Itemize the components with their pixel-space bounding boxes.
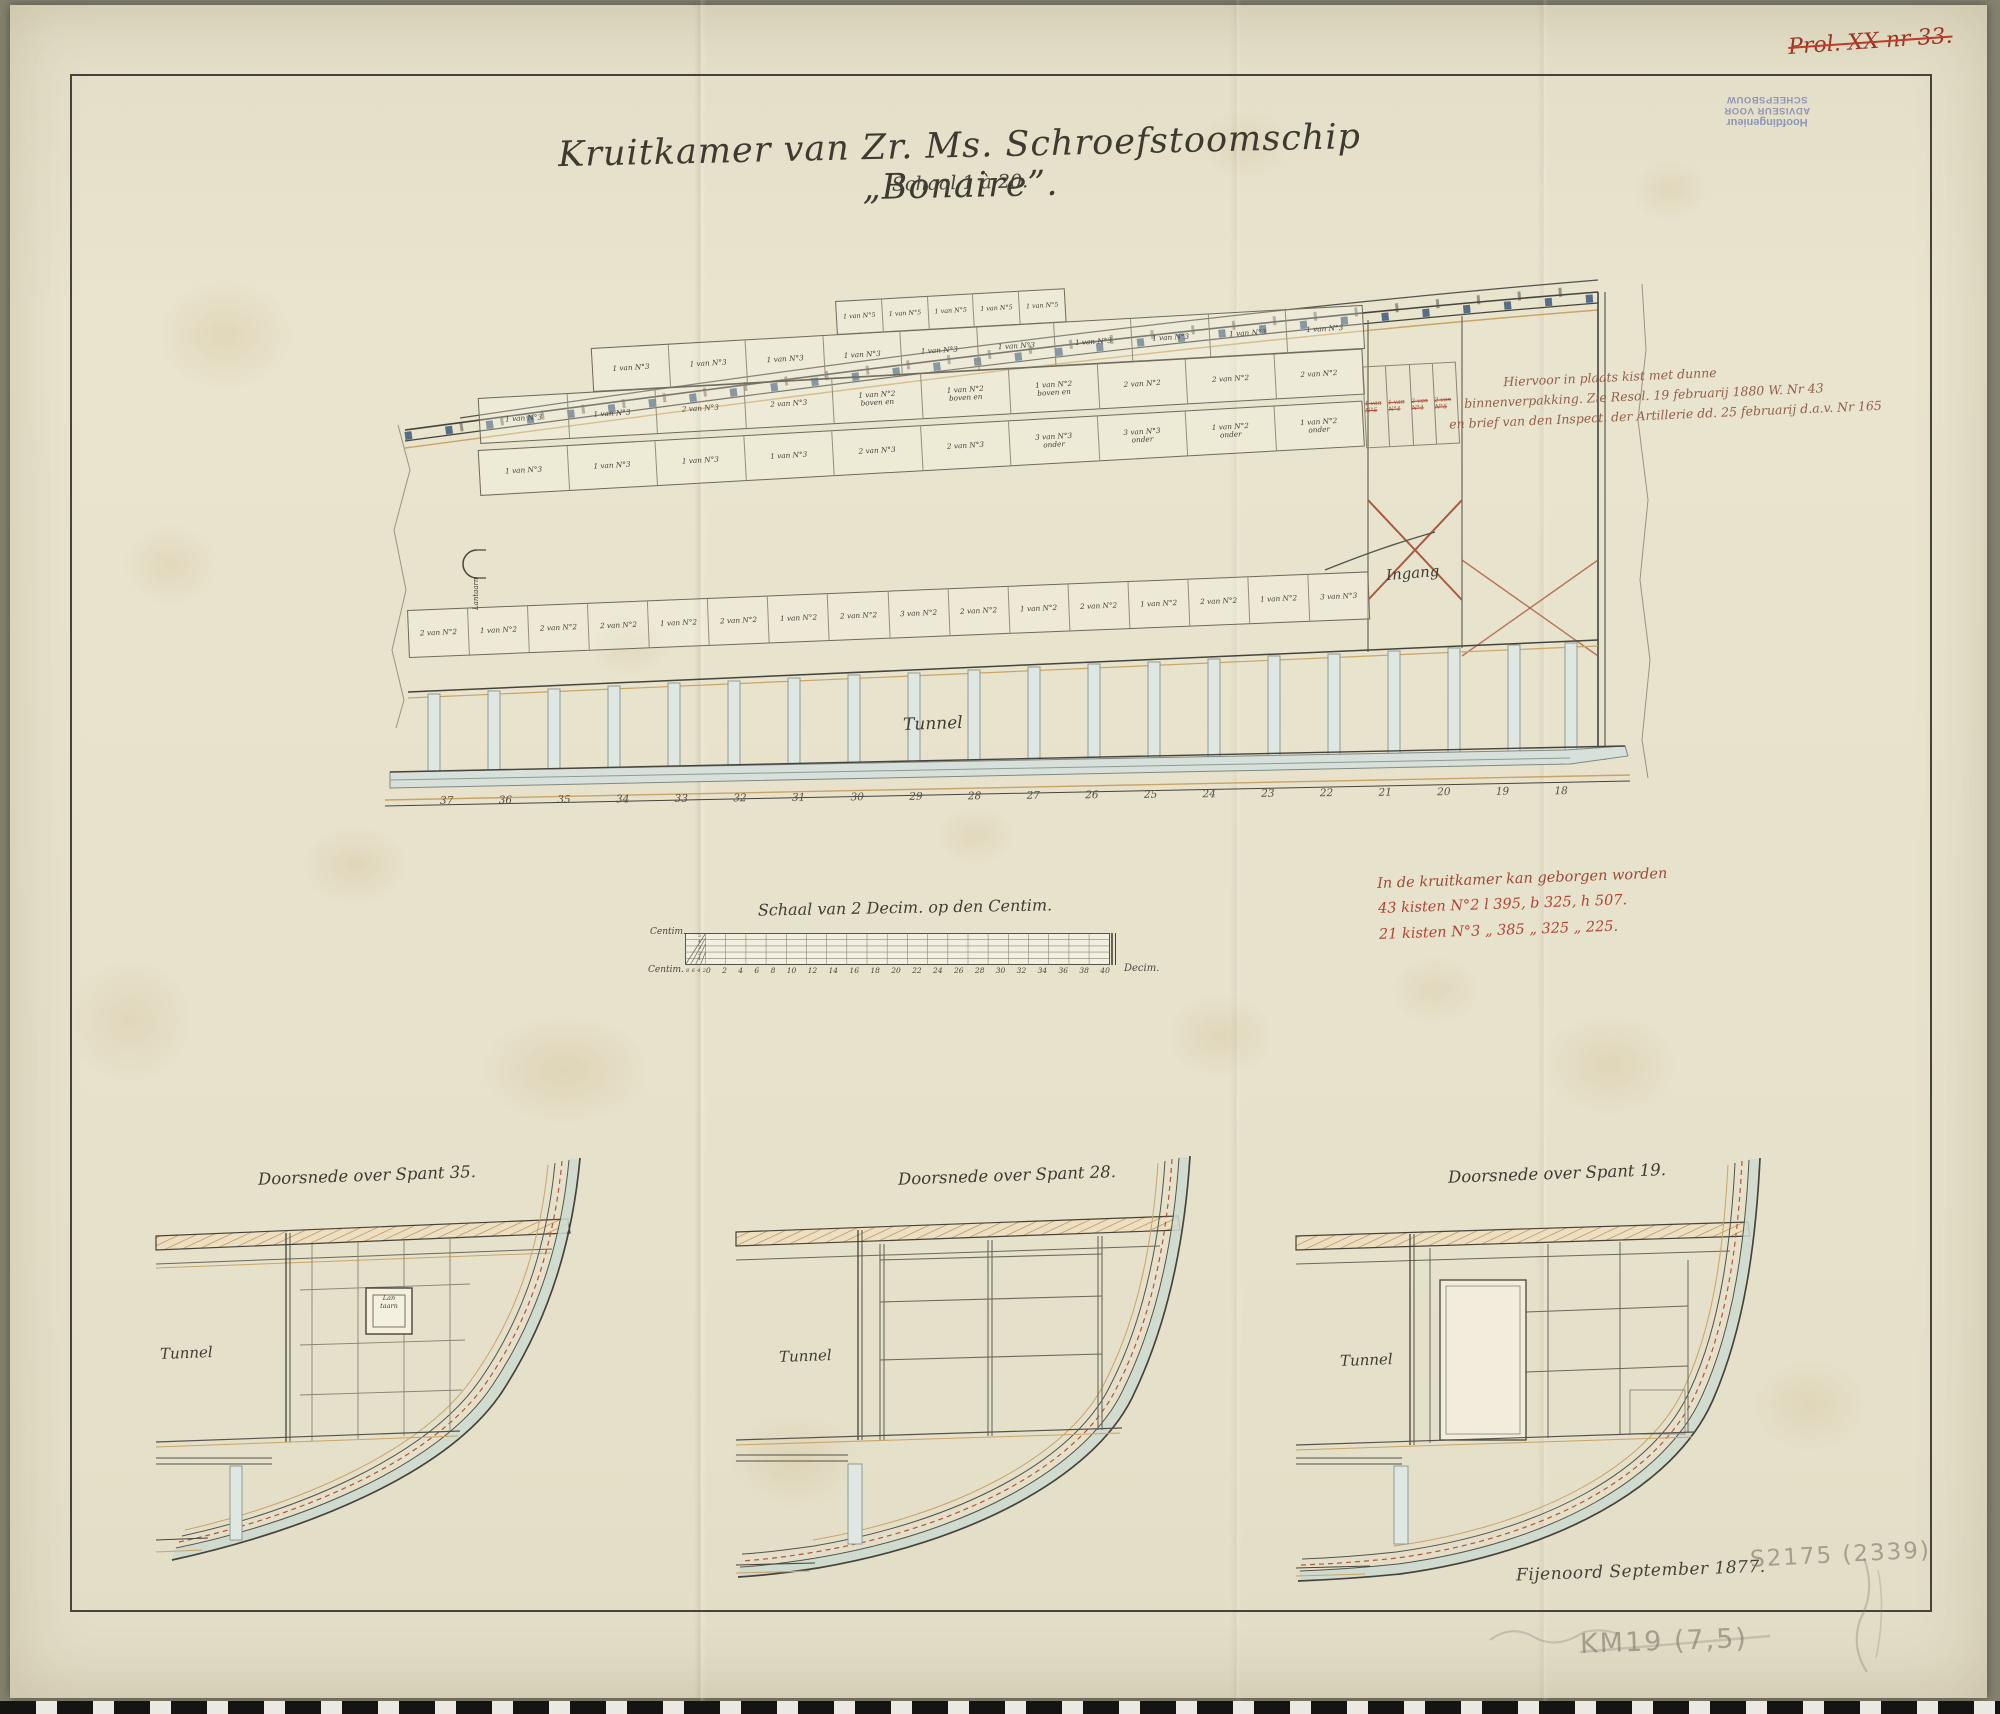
door-panel <box>1440 1280 1526 1440</box>
frame-number: 28 <box>968 790 981 802</box>
pre-tick: 4 <box>697 968 700 974</box>
tick-number: 20 <box>891 966 901 975</box>
rack-cell: 1 van N°3 <box>977 323 1056 369</box>
scale-bar-body <box>686 934 1110 965</box>
archive-stamp: Hoofdingenieur ADVISEUR VOOR SCHEEPSBOUW <box>1692 94 1842 128</box>
side-tick: 1 <box>698 958 701 963</box>
rack-cell: 1 van N°2 <box>648 599 710 647</box>
frame-number: 34 <box>616 793 629 805</box>
frame-number: 25 <box>1144 789 1157 801</box>
torn-edge-right <box>1638 284 1650 778</box>
rack-cell: 2 van N°2 <box>1097 359 1188 408</box>
tick-number: 2 <box>722 966 727 975</box>
tick-number: 36 <box>1058 966 1068 975</box>
frame-number: 33 <box>675 793 688 805</box>
tick-number: 4 <box>738 966 743 975</box>
rack-cell: 1 van N°3 <box>655 436 746 485</box>
rack-cell: 1 van N°3 <box>746 336 825 382</box>
section-spant-35 <box>156 1158 580 1560</box>
frame-number: 23 <box>1261 788 1274 800</box>
tick-number: 30 <box>996 966 1006 975</box>
rack-cell: 1 van N°2 boven en <box>832 374 923 423</box>
frame-number: 29 <box>909 791 922 803</box>
rack-cell: 3 van N°3 onder <box>1009 416 1100 465</box>
rack-cell: 1 van N°5 <box>882 297 930 332</box>
rack-cell: 1 van N°3 <box>567 389 658 438</box>
rack-cell: 1 van N°3 <box>744 431 835 480</box>
section-spant-28 <box>736 1156 1190 1577</box>
frame-number: 19 <box>1496 786 1509 798</box>
rack-cell: 1 van N°3 <box>1131 315 1210 361</box>
rack-cell: 1 van N°5 <box>973 292 1021 327</box>
frame-number: 27 <box>1027 790 1040 802</box>
scale-bar-unit-bottom-left: Centim. <box>648 965 684 975</box>
frame-number: 20 <box>1437 786 1450 798</box>
scale-bar-ticks: 0246810121416182022242628303234363840 <box>706 966 1110 975</box>
rack-cell: 2 van N°2 <box>708 597 770 645</box>
scale-bar-unit-right: Decim. <box>1124 963 1159 974</box>
rack-cell: 2 van N°2 <box>1188 577 1250 625</box>
side-tick: 4 <box>698 941 701 946</box>
film-sprocket-strip <box>0 1701 2000 1714</box>
tick-number: 34 <box>1038 966 1048 975</box>
rack-cell: 2 van N°2 <box>588 601 650 649</box>
rack-cell: 2 van N°2 <box>828 592 890 640</box>
rack-cell: 2 van N°2 <box>408 609 470 657</box>
tunnel-pillars <box>428 643 1577 771</box>
rack-cell: 2 van N°3 <box>921 421 1012 470</box>
rack-cell: 1 van N°3 <box>479 394 570 443</box>
tunnel-label-section-19: Tunnel <box>1340 1350 1393 1370</box>
pencil-scribbles <box>1440 1540 1900 1710</box>
rack-cell: 1 van N°2 onder <box>1186 407 1277 456</box>
rack-cell: 1 van N°3 <box>823 332 902 378</box>
tick-number: 32 <box>1017 966 1027 975</box>
tick-number: 8 <box>771 966 776 975</box>
frame-number: 22 <box>1320 787 1333 799</box>
rack-cell: 2 van N°2 <box>528 604 590 652</box>
tunnel-label-plan: Tunnel <box>903 713 963 735</box>
scale-bar-pre-ticks: 8642 <box>686 968 706 974</box>
frame-number: 32 <box>733 792 746 804</box>
tick-number: 38 <box>1079 966 1089 975</box>
tunnel-label-section-28: Tunnel <box>779 1346 832 1366</box>
tick-number: 40 <box>1100 966 1110 975</box>
rack-cell: 2 van N°3 <box>744 379 835 428</box>
rack-cell: 1 van N°3 <box>1208 310 1287 356</box>
frame-number: 31 <box>792 792 805 804</box>
tick-number: 14 <box>829 966 839 975</box>
rack-cell: 1 van N°2 onder <box>1274 402 1364 451</box>
rack-cell: 1 van N°5 <box>1019 289 1066 323</box>
rack-cell: 1 van N°3 <box>1286 306 1364 352</box>
section-spant-19 <box>1296 1158 1760 1581</box>
rack-cell: 1 van N°5 <box>836 299 884 334</box>
struck-row: 1 van N°51 van N°42 van N°42 van N°5 <box>1363 363 1459 448</box>
tick-number: 26 <box>954 966 964 975</box>
frame-number: 35 <box>557 794 570 806</box>
frame-number: 18 <box>1554 785 1567 797</box>
rack-cell: 1 van N°2 <box>1128 580 1190 628</box>
tick-number: 24 <box>933 966 943 975</box>
tick-number: 16 <box>849 966 859 975</box>
rack-cell: 1 van N°3 <box>479 446 570 495</box>
tick-number: 18 <box>870 966 880 975</box>
rack-cell: 2 van N°3 <box>655 384 746 433</box>
rack-cell: 1 van N°2 <box>768 594 830 642</box>
keel-band <box>390 746 1628 788</box>
scale-bar-graphic <box>684 932 1124 970</box>
tick-number: 22 <box>912 966 922 975</box>
scale-bar-side-ticks: 54321 <box>698 935 701 963</box>
rack-cell: 1 van N°3 <box>1054 319 1133 365</box>
hull-outer <box>1298 1158 1760 1581</box>
rack-cell: 2 van N°2 <box>1186 355 1277 404</box>
capacity-note: In de kruitkamer kan geborgen worden 43 … <box>1377 860 1719 948</box>
torn-edge-left <box>392 425 410 728</box>
rack-cell: 3 van N°3 <box>1308 572 1369 620</box>
rack-cell: 2 van N°2 <box>1274 350 1364 399</box>
orlop-floor-ochre <box>408 646 1598 698</box>
frame-number: 24 <box>1202 788 1215 800</box>
tick-number: 0 <box>706 966 711 975</box>
rack-cell: 1 van N°3 <box>592 345 671 391</box>
rack-cell: 1 van N°3 <box>669 340 748 386</box>
rack-cell: 2 van N°3 <box>832 426 923 475</box>
stamp-line2: ADVISEUR VOOR SCHEEPSBOUW <box>1692 94 1842 116</box>
side-tick: 5 <box>698 935 701 940</box>
tick-number: 6 <box>754 966 759 975</box>
lantaarn-box-label: Lan taarn <box>367 1295 411 1311</box>
rack-cell: 3 van N°2 <box>888 589 950 637</box>
rack-cell: 3 van N°3 onder <box>1097 411 1188 460</box>
frame-number: 21 <box>1378 787 1391 799</box>
rack-cell: 1 van N°2 boven en <box>921 369 1012 418</box>
scale-bar-unit-top-left: Centim. <box>650 927 686 937</box>
rack-cell: 2 van N°2 <box>1068 582 1130 630</box>
rack-cell: 1 van N°2 <box>1008 584 1070 632</box>
tick-number: 10 <box>787 966 797 975</box>
lantaarn-label: Lantaarn <box>472 554 480 610</box>
rack-cell: 1 van N°2 boven en <box>1009 364 1100 413</box>
tick-number: 28 <box>975 966 985 975</box>
frame-number: 36 <box>499 794 512 806</box>
tick-number: 12 <box>808 966 818 975</box>
tunnel-label-section-35: Tunnel <box>160 1343 213 1363</box>
rack-cell: 1 van N°2 <box>468 606 530 654</box>
rack-cell: 1 van N°3 <box>900 327 979 373</box>
pre-tick: 6 <box>692 968 695 974</box>
frame-number: 37 <box>440 795 453 807</box>
archival-drawing-sheet: Prol. XX nr 33. Hoofdingenieur ADVISEUR … <box>0 0 2000 1714</box>
rack-cell: 2 van N°2 <box>948 587 1010 635</box>
rack-cell: 1 van N°2 <box>1248 575 1310 623</box>
frame-number: 30 <box>851 791 864 803</box>
rack-cell: 1 van N°3 <box>567 441 658 490</box>
pre-tick: 8 <box>686 968 689 974</box>
frame-number: 26 <box>1085 789 1098 801</box>
side-tick: 3 <box>698 947 701 952</box>
rack-grid <box>880 1236 1102 1440</box>
rack-cell: 1 van N°5 <box>928 294 976 329</box>
stamp-line1: Hoofdingenieur <box>1692 116 1842 128</box>
struck-labels-box: 1 van N°51 van N°42 van N°42 van N°5 <box>1362 362 1460 449</box>
